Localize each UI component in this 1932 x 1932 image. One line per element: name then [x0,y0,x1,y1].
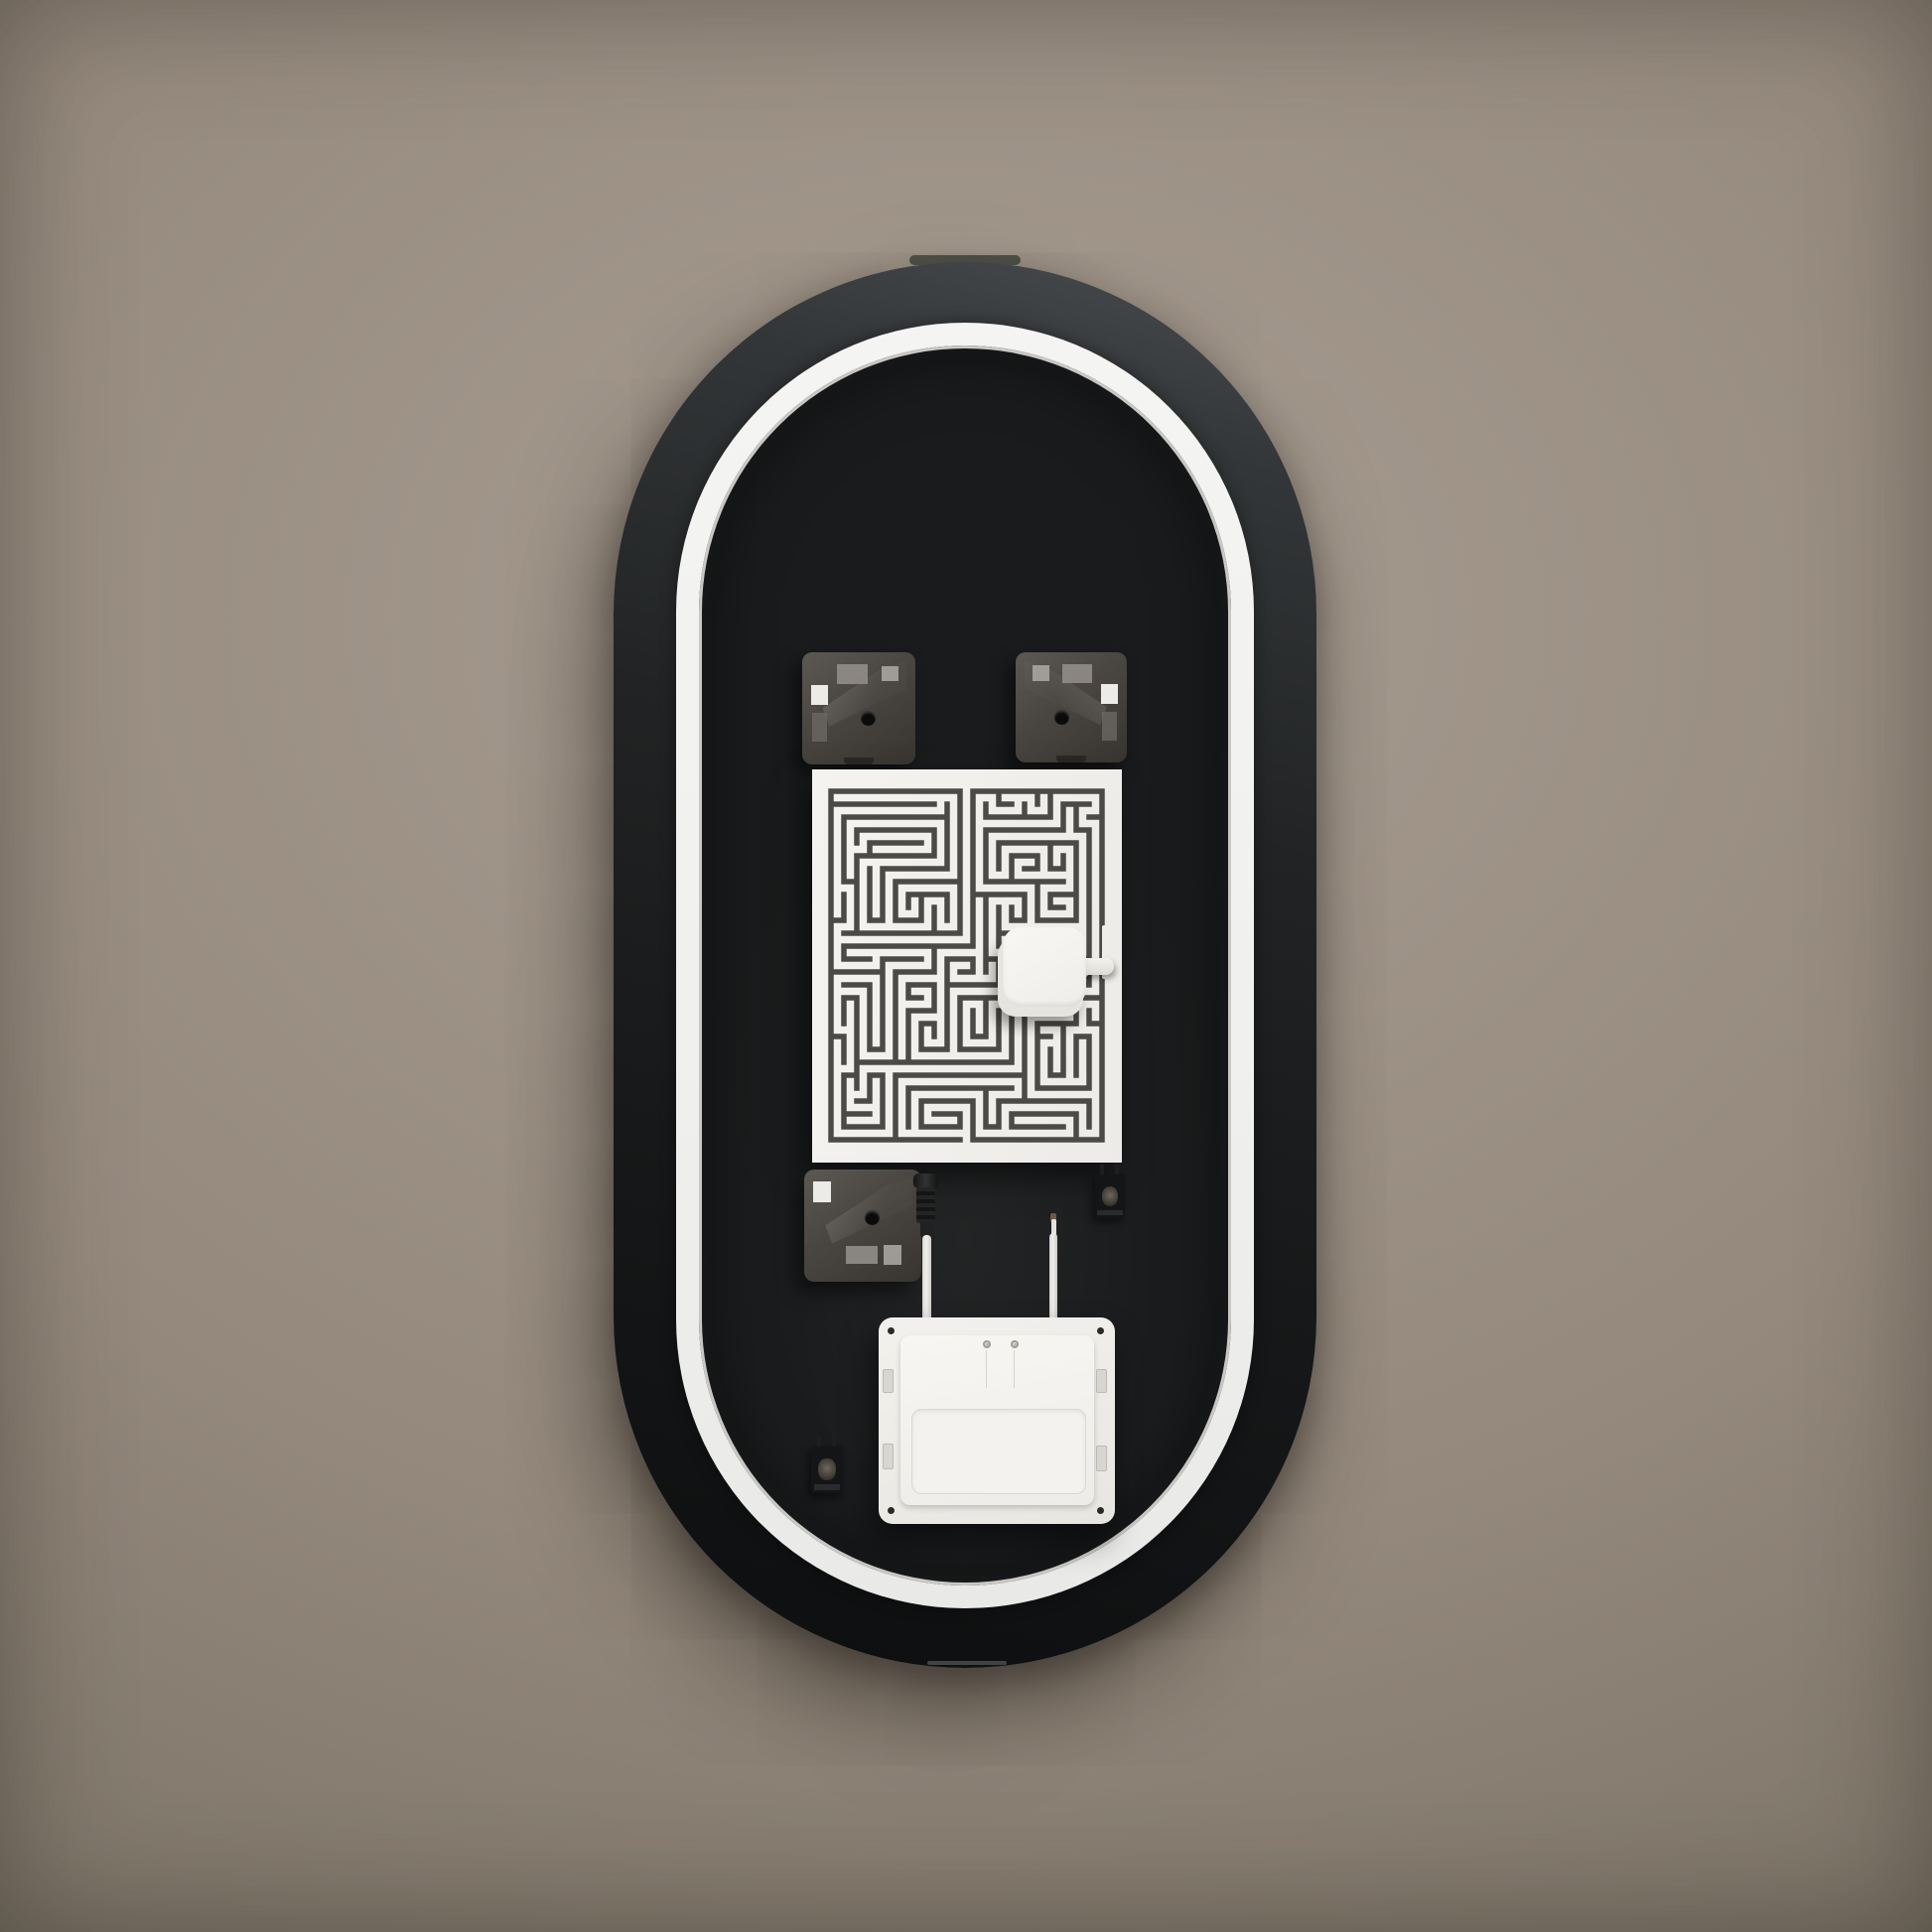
corner-screw-hole [888,1507,895,1514]
level-notch [813,1181,831,1201]
clip-lip [1097,1210,1122,1215]
thermostat-pod [1003,927,1086,1007]
clip-prong [832,1437,836,1447]
corner-screw-hole [1097,1327,1104,1334]
spring-tab [1062,664,1092,683]
plate-foot [1056,756,1085,762]
clip-prong [1100,1165,1104,1174]
mounting-plate-bottom-left [804,1170,921,1282]
spring-tab [882,666,898,682]
cover-screw [983,1340,991,1348]
screw-hole [1054,710,1069,725]
spring-tab [1033,665,1049,681]
corner-screw-hole [1097,1507,1104,1514]
clip-prong [1115,1165,1119,1174]
corner-screw-hole [888,1327,895,1334]
dc-plug-body [916,1187,935,1223]
product-photo-stage [0,0,1932,1932]
mounting-plate-face [802,652,915,764]
power-cable [922,1235,931,1326]
level-notch [1101,684,1118,704]
mounting-plate-face [804,1170,921,1282]
cover-clip [1096,1446,1107,1471]
slide-bar [812,713,827,742]
clip-hole [818,1458,836,1480]
spring-tab [837,664,868,683]
cover-seam [986,1350,987,1388]
mounting-plate-top-left [802,652,915,764]
slide-bar [1102,712,1117,741]
cable-clip-bottom-left [811,1446,843,1493]
mounting-plate-top-right [1016,652,1127,762]
driver-box-label-recess [911,1409,1086,1494]
cable-clip-right [1095,1173,1125,1218]
cover-clip [883,1444,894,1469]
clip-hole [1102,1186,1119,1206]
cover-clip [883,1369,894,1393]
clip-prong [817,1437,821,1447]
clip-lip [814,1484,841,1490]
cover-seam [1014,1350,1015,1388]
antenna [1049,1233,1057,1324]
screw-hole [861,711,876,726]
glass-edge-reflection [927,1661,1007,1665]
level-notch [811,685,828,705]
spring-tab [846,1246,878,1264]
plate-foot [844,758,874,764]
screw-hole [865,1210,880,1225]
mounting-plate-face [1016,652,1127,762]
cover-screw [1011,1340,1019,1348]
spring-tab [884,1245,901,1265]
dc-plug-cap [913,1173,938,1188]
cover-clip [1096,1369,1107,1393]
